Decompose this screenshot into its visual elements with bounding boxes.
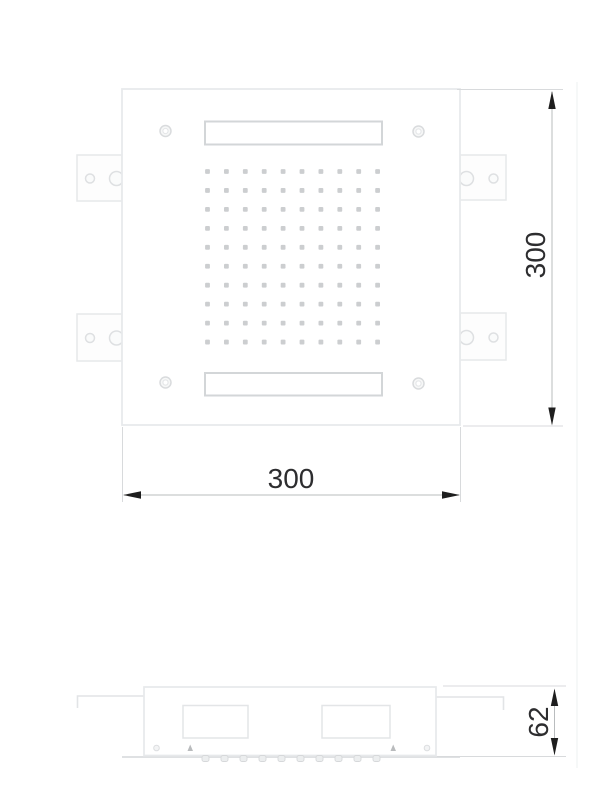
nozzle-dot xyxy=(356,207,361,212)
nozzle-dot xyxy=(281,321,286,326)
nozzle-dot xyxy=(262,283,267,288)
corner-hole-inner xyxy=(416,381,421,386)
nozzle-dot xyxy=(337,283,342,288)
dim-depth-label: 62 xyxy=(523,706,554,737)
nozzle-dot xyxy=(205,169,210,174)
nozzle-dot xyxy=(300,207,305,212)
dim-height-label: 300 xyxy=(520,232,551,279)
nozzle-dot xyxy=(337,302,342,307)
nozzle-dot xyxy=(337,264,342,269)
corner-hole-inner xyxy=(163,380,168,385)
nozzle-dot xyxy=(224,207,229,212)
spray-nozzle-bump xyxy=(335,756,342,762)
spray-nozzle-bump xyxy=(202,756,209,762)
nozzle-dot xyxy=(205,245,210,250)
technical-drawing-svg: 300 300 62 xyxy=(0,0,607,800)
nozzle-dot xyxy=(262,302,267,307)
nozzle-dot xyxy=(262,207,267,212)
corner-hole-inner xyxy=(163,128,168,133)
nozzle-dot xyxy=(224,302,229,307)
nozzle-dot xyxy=(281,302,286,307)
nozzle-dot xyxy=(356,340,361,345)
chamber-right xyxy=(322,706,390,739)
dim-arrow-down-icon xyxy=(548,408,555,426)
nozzle-dot xyxy=(319,264,324,269)
dim-height: 300 xyxy=(457,90,563,427)
nozzle-dot xyxy=(337,226,342,231)
nozzle-dot xyxy=(224,321,229,326)
nozzle-dot xyxy=(262,226,267,231)
nozzle-dot xyxy=(224,264,229,269)
dim-arrow-up-icon xyxy=(551,689,558,707)
tab-hole-icon xyxy=(489,333,498,342)
nozzle-dot xyxy=(243,207,248,212)
nozzle-dot xyxy=(337,169,342,174)
nozzle-dot xyxy=(281,188,286,193)
slot-bottom xyxy=(205,373,382,396)
nozzle-dot xyxy=(262,245,267,250)
nozzle-dot xyxy=(262,321,267,326)
spray-nozzle-bump xyxy=(278,756,285,762)
nozzle-dot xyxy=(281,340,286,345)
nozzle-dot xyxy=(375,245,380,250)
tab-hole-icon xyxy=(86,174,95,183)
nozzle-dot xyxy=(319,321,324,326)
nozzle-dot xyxy=(243,226,248,231)
nozzle-dot xyxy=(375,340,380,345)
nozzle-dot xyxy=(356,169,361,174)
nozzle-dot xyxy=(205,264,210,269)
nozzle-dot xyxy=(243,245,248,250)
dim-arrow-right-icon xyxy=(442,491,460,498)
nozzle-dot xyxy=(262,340,267,345)
chamber-left xyxy=(183,706,248,739)
nozzle-dot xyxy=(319,207,324,212)
nozzle-dot xyxy=(205,321,210,326)
nozzle-dot xyxy=(262,264,267,269)
nozzle-dot xyxy=(262,169,267,174)
nozzle-dot xyxy=(319,283,324,288)
nozzle-dot xyxy=(375,264,380,269)
nozzle-dot xyxy=(300,169,305,174)
nozzle-dot xyxy=(281,169,286,174)
nozzle-dot xyxy=(205,283,210,288)
nozzle-dot xyxy=(281,283,286,288)
nozzle-dot xyxy=(224,245,229,250)
nozzle-dot xyxy=(205,226,210,231)
nozzle-dot xyxy=(300,302,305,307)
nozzle-dot xyxy=(356,245,361,250)
nozzle-dot xyxy=(375,283,380,288)
nozzle-dot xyxy=(337,188,342,193)
nozzle-dot xyxy=(375,207,380,212)
nozzle-dot xyxy=(224,340,229,345)
tab-hole-icon xyxy=(460,172,474,186)
nozzle-dot xyxy=(243,188,248,193)
dim-width: 300 xyxy=(123,427,461,502)
nozzle-dot xyxy=(375,188,380,193)
flange-right xyxy=(436,697,504,710)
nozzle-dot xyxy=(337,340,342,345)
nozzle-dot xyxy=(224,169,229,174)
slot-top xyxy=(205,122,382,145)
nozzle-dot xyxy=(319,245,324,250)
nozzle-dot xyxy=(300,283,305,288)
spray-nozzle-bump xyxy=(316,756,323,762)
dim-arrow-up-icon xyxy=(548,91,555,109)
nozzle-dot xyxy=(356,188,361,193)
nozzle-dot xyxy=(243,264,248,269)
fastener-mark-icon xyxy=(154,745,160,751)
nozzle-dot xyxy=(356,226,361,231)
spray-nozzle-bump xyxy=(240,756,247,762)
spray-nozzle-bump xyxy=(259,756,266,762)
nozzle-dot xyxy=(356,283,361,288)
fastener-mark-icon xyxy=(424,745,430,751)
tab-hole-icon xyxy=(460,331,474,345)
nozzle-dot xyxy=(205,340,210,345)
nozzle-dot xyxy=(300,245,305,250)
nozzle-dot xyxy=(281,245,286,250)
nozzle-dot xyxy=(205,302,210,307)
nozzle-dot xyxy=(300,264,305,269)
nozzle-dot xyxy=(243,169,248,174)
nozzle-dot xyxy=(224,283,229,288)
side-view xyxy=(78,687,504,762)
dim-arrow-down-icon xyxy=(551,738,558,756)
nozzle-dot xyxy=(375,302,380,307)
nozzle-dot xyxy=(224,188,229,193)
nozzle-dot xyxy=(205,188,210,193)
nozzle-dot xyxy=(337,245,342,250)
drawing-canvas: 300 300 62 xyxy=(0,0,607,800)
corner-hole-inner xyxy=(416,129,421,134)
nozzle-dot xyxy=(337,321,342,326)
spray-nozzle-bump xyxy=(354,756,361,762)
tab-hole-icon xyxy=(489,174,498,183)
nozzle-dot xyxy=(356,321,361,326)
nozzle-dot xyxy=(356,302,361,307)
nozzle-dot xyxy=(375,226,380,231)
nozzle-dot xyxy=(243,321,248,326)
nozzle-dot xyxy=(375,321,380,326)
nozzle-dot xyxy=(300,188,305,193)
nozzle-dot xyxy=(243,283,248,288)
nozzle-dot xyxy=(300,340,305,345)
spray-nozzle-bump xyxy=(373,756,380,762)
nozzle-dot xyxy=(281,226,286,231)
flange-left xyxy=(78,696,145,708)
nozzle-dot xyxy=(356,264,361,269)
nozzle-dot xyxy=(224,226,229,231)
nozzle-dot xyxy=(300,321,305,326)
nozzle-dot xyxy=(243,340,248,345)
nozzle-dot xyxy=(281,264,286,269)
nozzle-dot xyxy=(319,302,324,307)
top-view xyxy=(77,89,506,425)
nozzle-dot xyxy=(319,226,324,231)
tab-hole-icon xyxy=(86,334,95,343)
dim-arrow-left-icon xyxy=(123,491,141,498)
nozzle-dot xyxy=(337,207,342,212)
nozzle-dot xyxy=(281,207,286,212)
nozzle-dot xyxy=(375,169,380,174)
spray-nozzle-bump xyxy=(297,756,304,762)
nozzle-dot xyxy=(262,188,267,193)
dim-width-label: 300 xyxy=(268,463,315,494)
nozzle-dot xyxy=(300,226,305,231)
nozzle-dot xyxy=(243,302,248,307)
nozzle-dot xyxy=(319,169,324,174)
nozzle-dot xyxy=(319,188,324,193)
spray-nozzle-bump xyxy=(221,756,228,762)
nozzle-dot xyxy=(205,207,210,212)
nozzle-dot xyxy=(319,340,324,345)
